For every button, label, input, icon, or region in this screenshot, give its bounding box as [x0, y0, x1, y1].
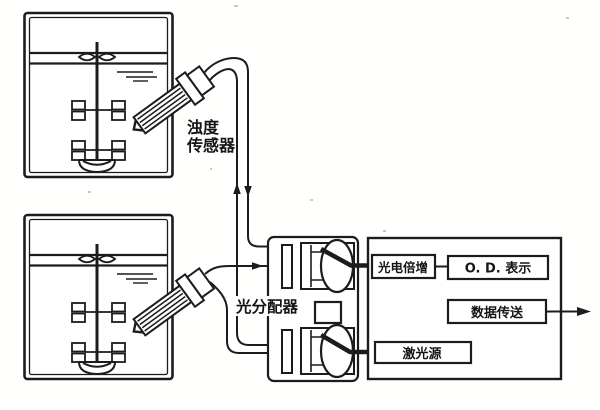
arrow-up-icon	[233, 183, 241, 194]
lower-slit-plate	[282, 330, 292, 373]
data-transfer-label: 数据传送	[471, 305, 524, 321]
turbidity-sensor-label-line2: 传感器	[186, 136, 236, 155]
upper-slit-plate	[282, 245, 292, 288]
arrow-right-icon	[577, 307, 591, 316]
fermentation-turbidity-monitoring-diagram: 浊度 传感器 光分配器 光电倍增 O. D. 表示 数据传送 激光源	[0, 0, 600, 410]
diagram-canvas: 浊度 传感器 光分配器 光电倍增 O. D. 表示 数据传送 激光源	[0, 0, 600, 410]
turbidity-sensor-label-line1: 浊度	[187, 118, 220, 137]
photomultiplier-label: 光电倍增	[377, 260, 428, 275]
od-display-label: O. D. 表示	[465, 261, 532, 277]
lower-fermenter	[25, 215, 217, 379]
arrow-down-icon	[244, 186, 252, 197]
arrow-right-icon	[252, 262, 263, 270]
center-module	[315, 302, 341, 323]
laser-source-label: 激光源	[402, 346, 441, 362]
light-distributor-label: 光分配器	[235, 297, 299, 316]
